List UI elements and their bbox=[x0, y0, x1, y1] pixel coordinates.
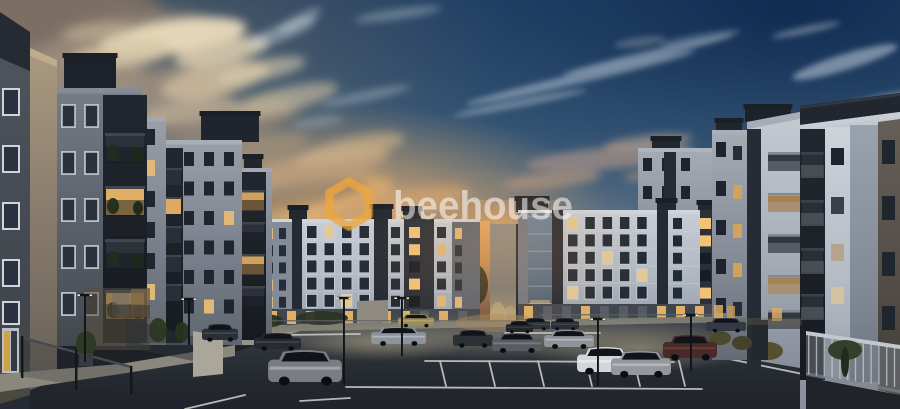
svg-text:beehouse: beehouse bbox=[393, 184, 573, 228]
